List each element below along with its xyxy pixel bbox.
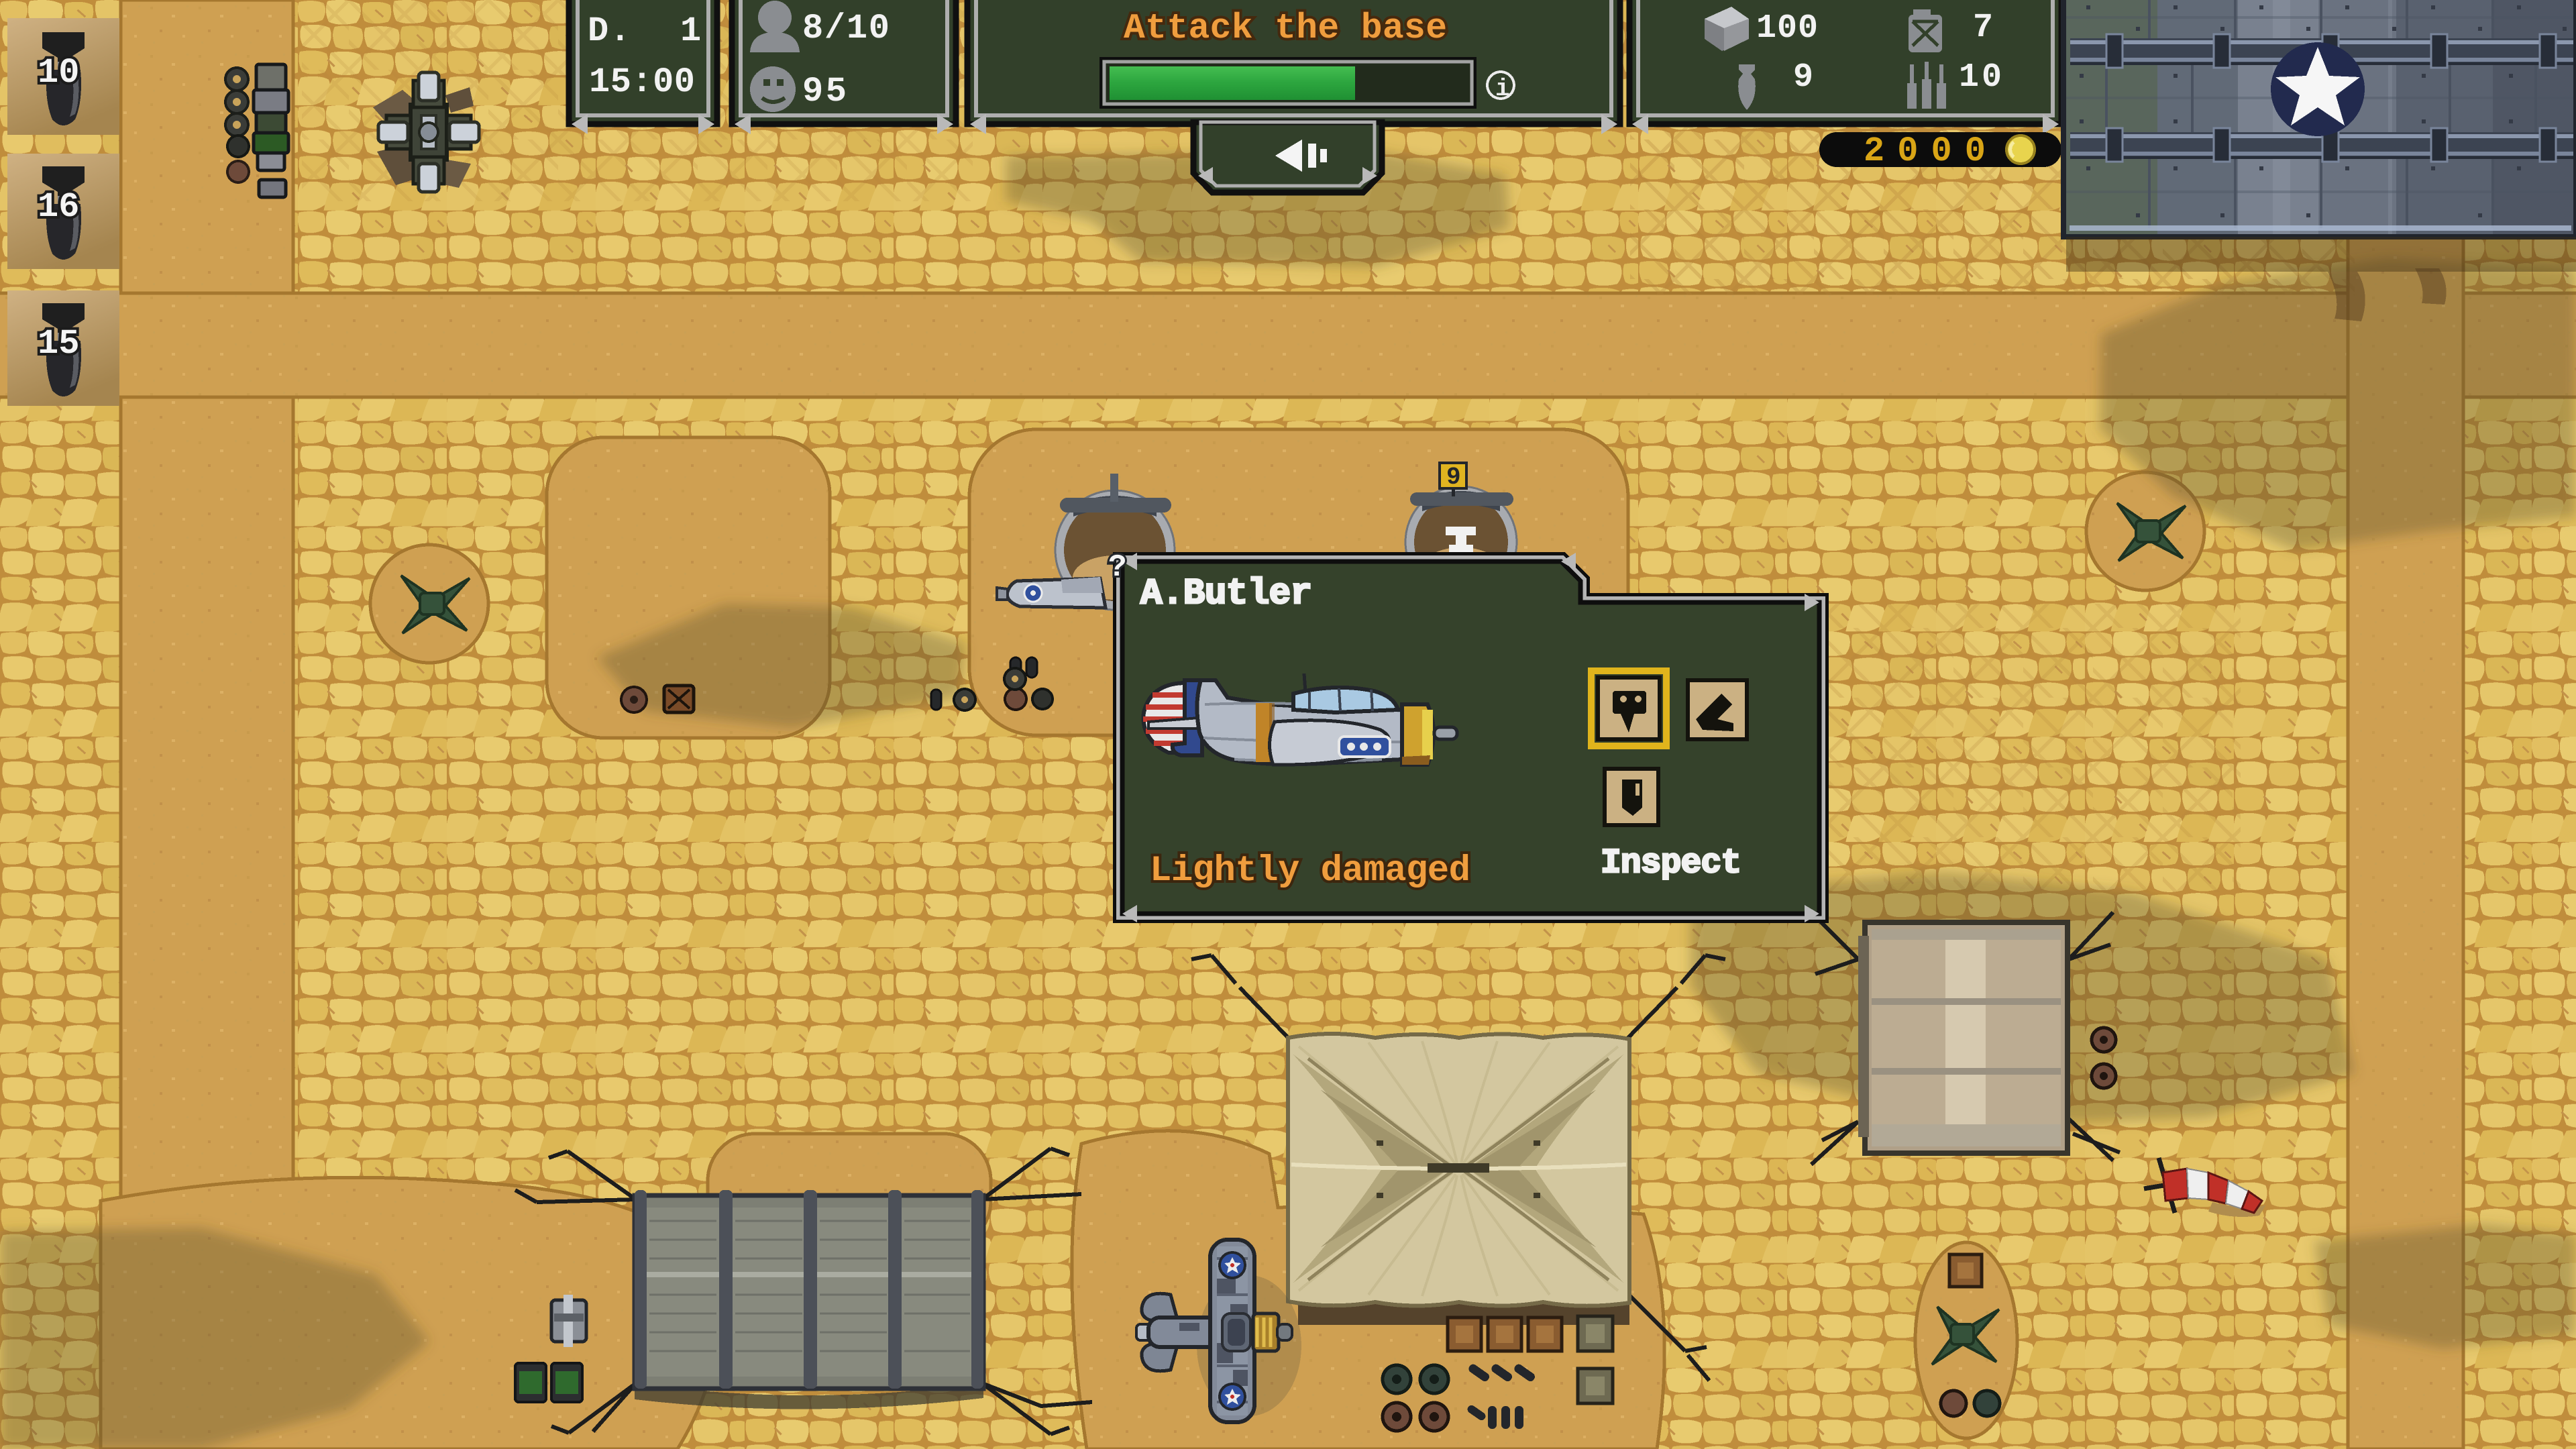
svg-text:15: 15 [38, 324, 79, 364]
svg-text:8/10: 8/10 [802, 9, 890, 48]
svg-text:7: 7 [1973, 9, 1993, 47]
svg-text:10: 10 [38, 53, 79, 93]
svg-text:Lightly damaged: Lightly damaged [1150, 851, 1470, 892]
svg-text:Attack the base: Attack the base [1124, 8, 1447, 48]
svg-text:?: ? [1108, 550, 1127, 585]
svg-text:1: 1 [680, 11, 701, 51]
svg-text:15:00: 15:00 [589, 62, 695, 102]
svg-text:100: 100 [1756, 9, 1818, 48]
svg-text:i: i [1495, 75, 1510, 103]
svg-text:9: 9 [1793, 58, 1813, 97]
svg-text:Inspect: Inspect [1601, 845, 1741, 883]
svg-text:16: 16 [38, 187, 79, 227]
svg-text:A.Butler: A.Butler [1140, 574, 1312, 614]
svg-text:9: 9 [1446, 464, 1461, 491]
svg-text:D.: D. [588, 11, 631, 51]
